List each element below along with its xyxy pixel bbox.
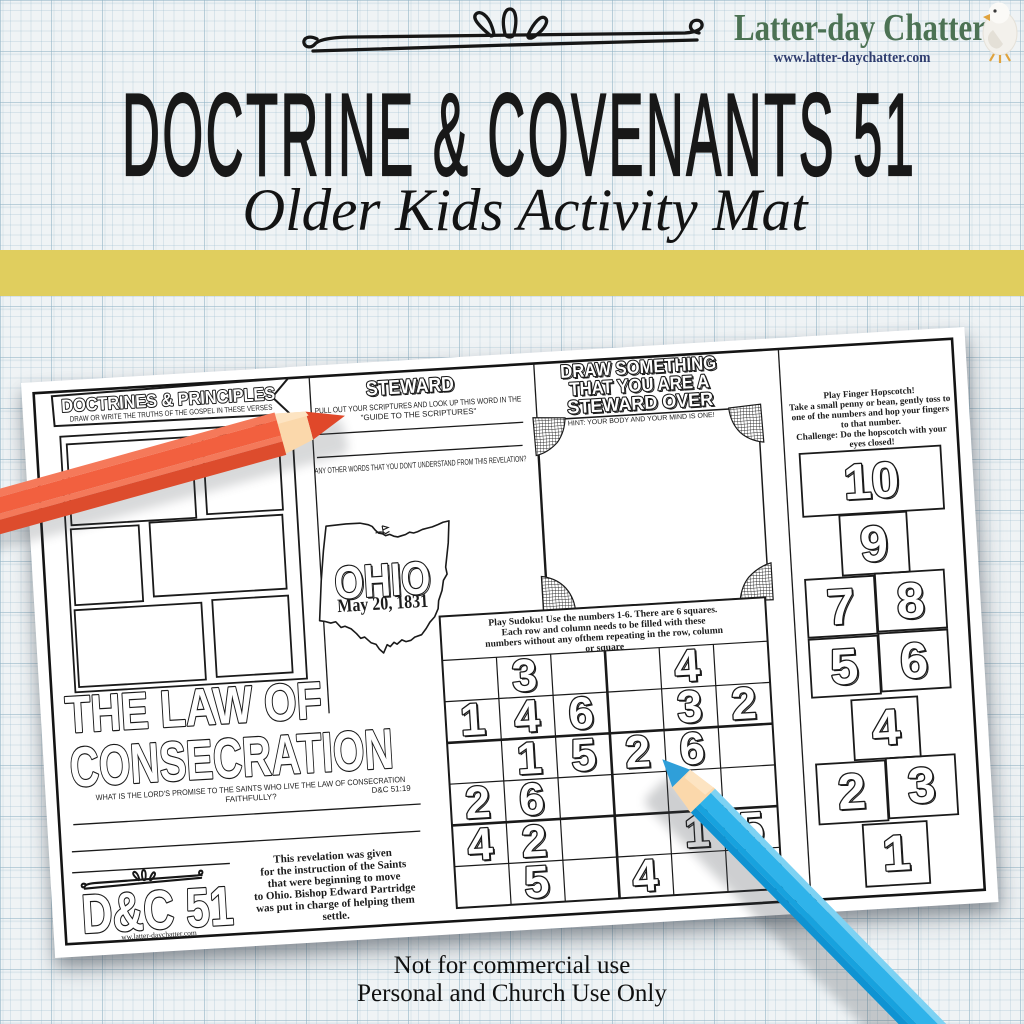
svg-text:ANY OTHER WORDS THAT YOU DON'T: ANY OTHER WORDS THAT YOU DON'T UNDERSTAN…: [314, 454, 526, 476]
svg-text:settle.: settle.: [322, 909, 350, 923]
svg-text:5: 5: [523, 856, 551, 908]
svg-text:1: 1: [683, 805, 711, 857]
svg-text:5: 5: [570, 729, 598, 781]
svg-text:4: 4: [631, 849, 659, 901]
svg-text:1: 1: [881, 824, 912, 882]
svg-text:2: 2: [624, 725, 652, 777]
svg-text:Older Kids Activity Mat: Older Kids Activity Mat: [243, 177, 809, 243]
svg-text:eyes closed!: eyes closed!: [849, 436, 895, 449]
svg-text:5: 5: [737, 802, 765, 854]
svg-text:10: 10: [842, 451, 901, 510]
svg-text:8: 8: [895, 572, 926, 630]
svg-text:5: 5: [829, 638, 860, 696]
svg-text:D&C 51:19: D&C 51:19: [371, 784, 411, 795]
svg-text:4: 4: [466, 818, 494, 870]
svg-text:7: 7: [825, 578, 856, 636]
svg-text:2: 2: [836, 763, 867, 821]
svg-text:3: 3: [906, 757, 937, 815]
svg-text:9: 9: [858, 515, 889, 573]
svg-text:4: 4: [870, 699, 901, 757]
svg-text:6: 6: [898, 632, 929, 690]
svg-text:2: 2: [730, 677, 758, 729]
svg-text:1: 1: [459, 693, 487, 745]
svg-text:FAITHFULLY?: FAITHFULLY?: [225, 792, 277, 804]
svg-text:6: 6: [678, 722, 706, 774]
